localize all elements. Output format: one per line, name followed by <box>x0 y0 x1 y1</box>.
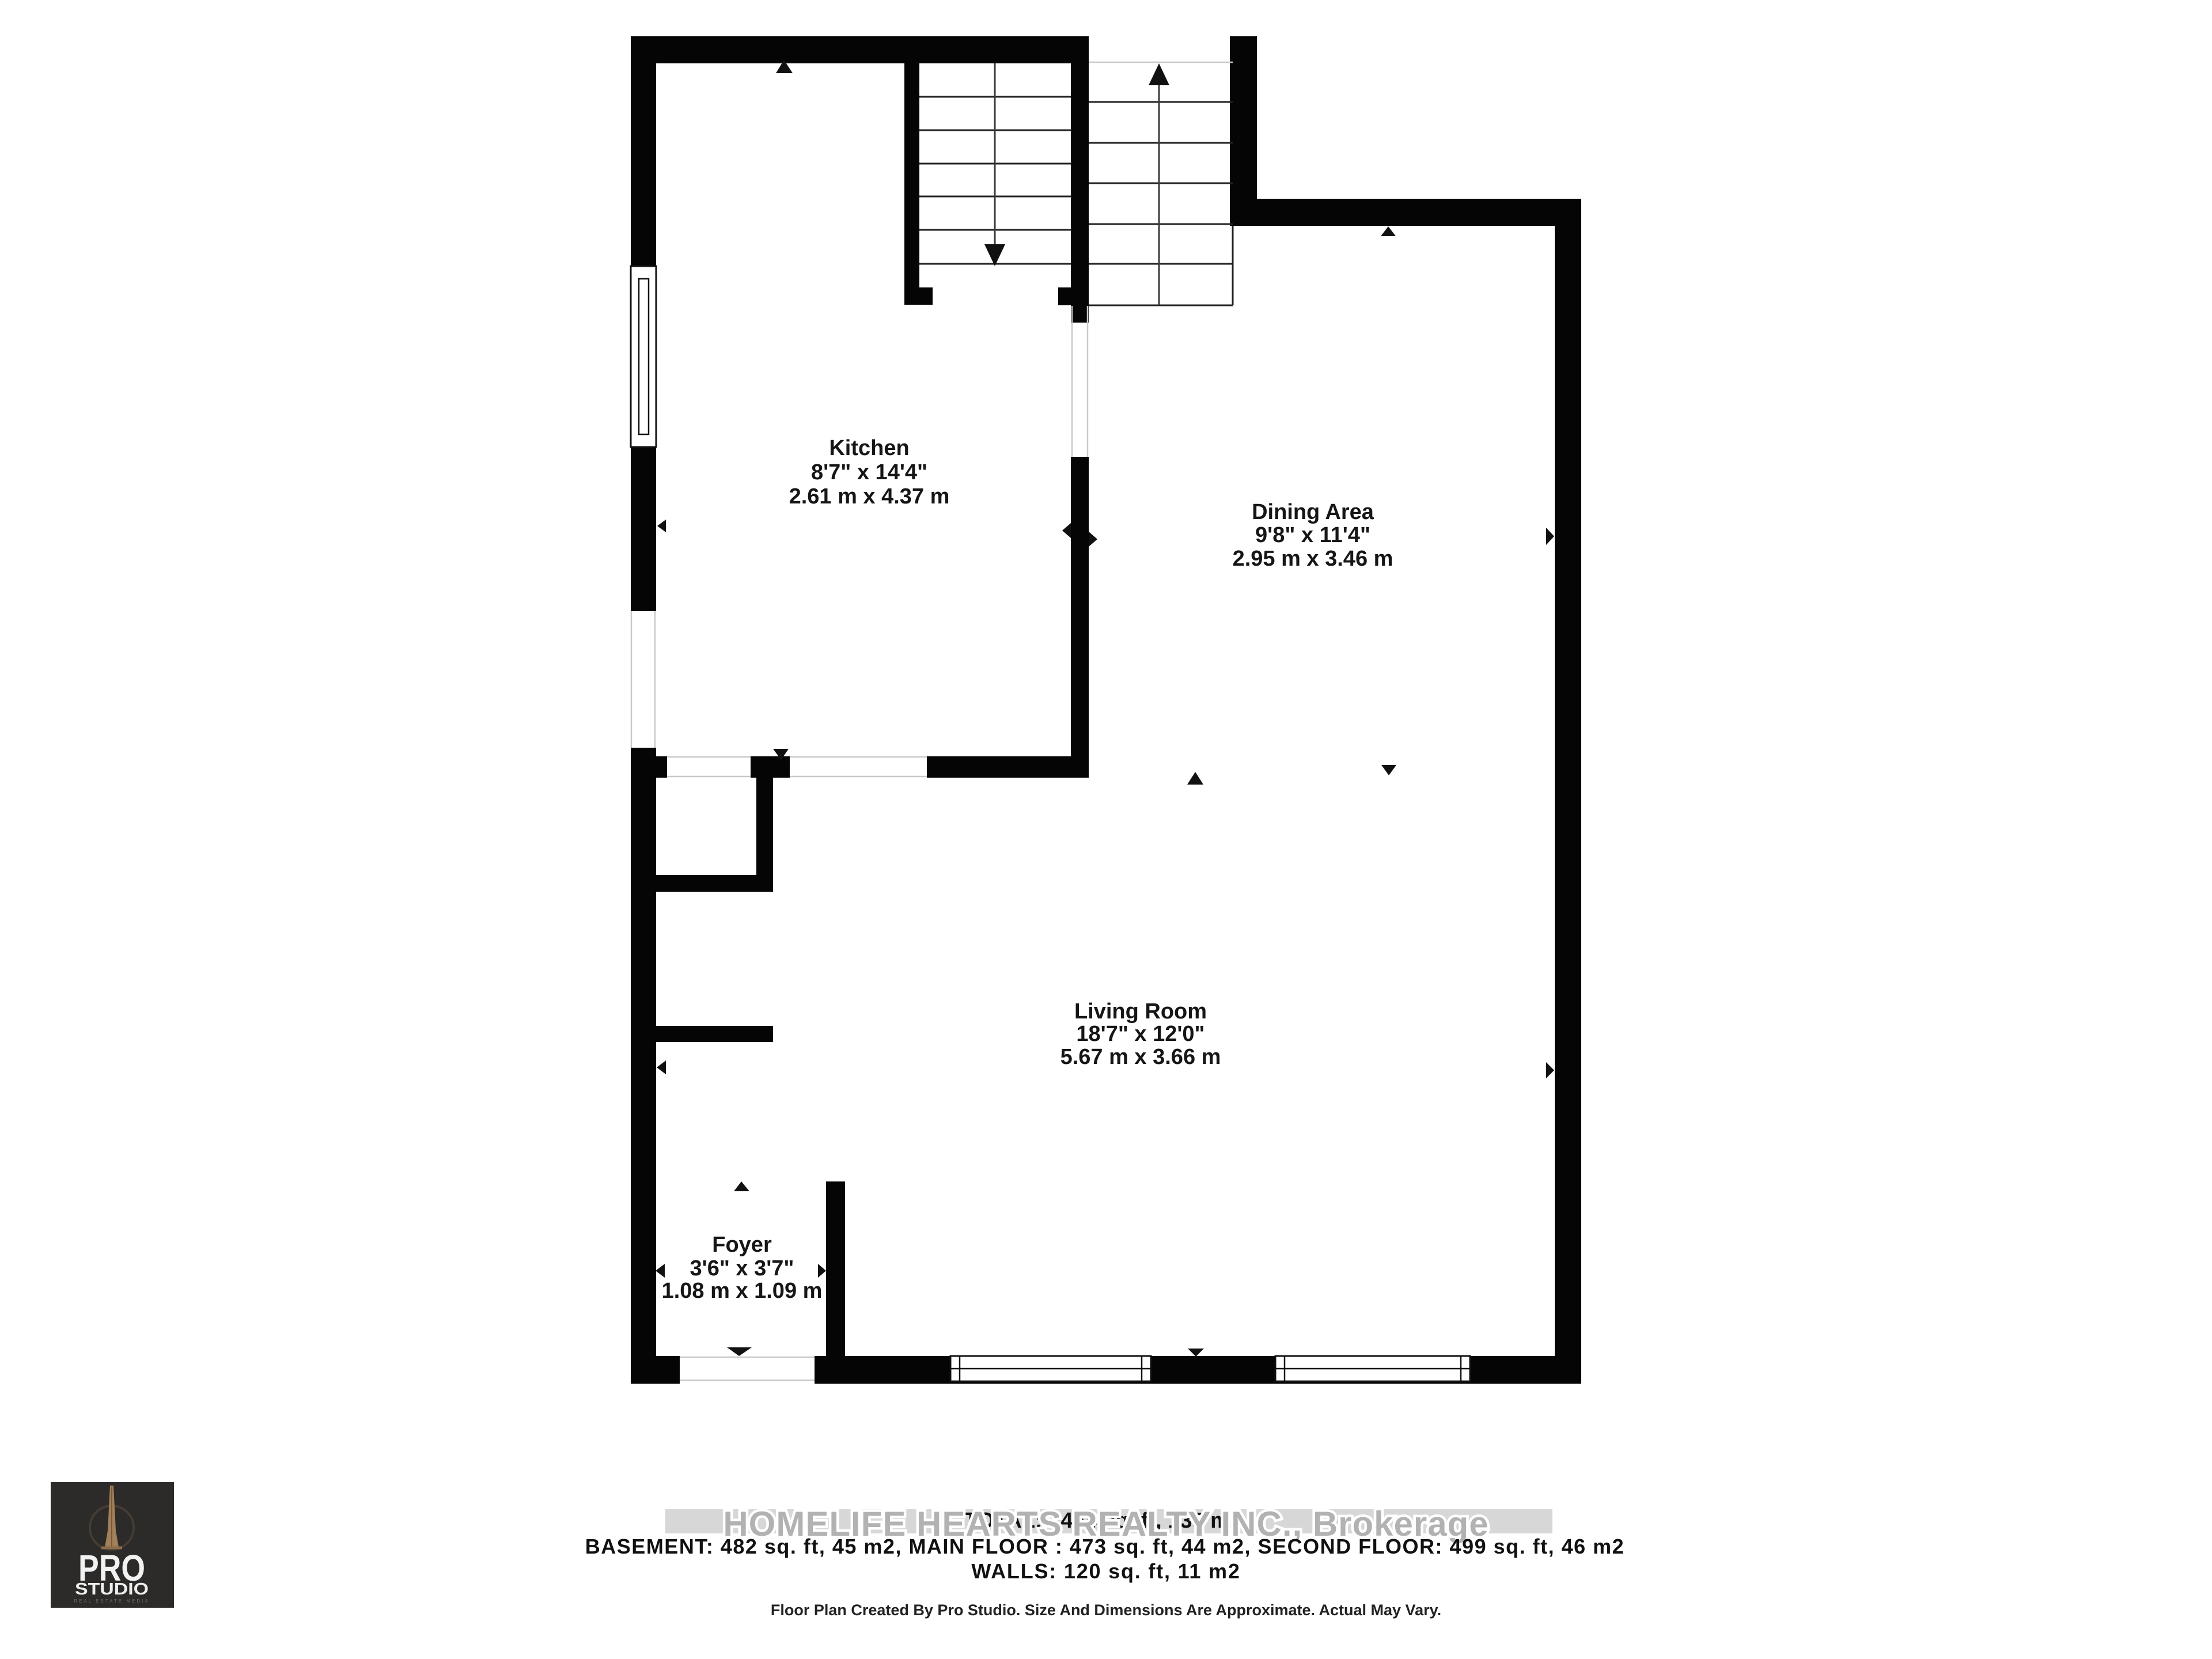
svg-text:8'7" x 14'4": 8'7" x 14'4" <box>811 460 927 484</box>
svg-text:2.95 m x 3.46 m: 2.95 m x 3.46 m <box>1233 547 1393 571</box>
svg-text:Foyer: Foyer <box>712 1233 772 1257</box>
svg-text:5.67 m x 3.66 m: 5.67 m x 3.66 m <box>1060 1045 1221 1069</box>
svg-text:BASEMENT: 482 sq. ft, 45 m2, M: BASEMENT: 482 sq. ft, 45 m2, MAIN FLOOR … <box>585 1535 1624 1558</box>
svg-text:WALLS: 120 sq. ft, 11 m2: WALLS: 120 sq. ft, 11 m2 <box>971 1559 1240 1583</box>
svg-text:1.08 m x 1.09 m: 1.08 m x 1.09 m <box>662 1279 823 1303</box>
svg-text:3'6" x 3'7": 3'6" x 3'7" <box>690 1256 794 1281</box>
svg-text:Floor Plan Created By Pro Stud: Floor Plan Created By Pro Studio. Size A… <box>771 1601 1441 1619</box>
svg-text:Dining Area: Dining Area <box>1252 500 1374 524</box>
svg-text:2.61 m x 4.37 m: 2.61 m x 4.37 m <box>789 484 950 509</box>
svg-text:REAL ESTATE MEDIA: REAL ESTATE MEDIA <box>74 1599 149 1604</box>
svg-text:9'8" x 11'4": 9'8" x 11'4" <box>1255 523 1370 547</box>
svg-text:18'7" x 12'0": 18'7" x 12'0" <box>1076 1022 1205 1046</box>
svg-text:Living Room: Living Room <box>1074 999 1207 1024</box>
svg-text:STUDIO: STUDIO <box>75 1580 149 1599</box>
svg-text:Kitchen: Kitchen <box>829 436 909 460</box>
